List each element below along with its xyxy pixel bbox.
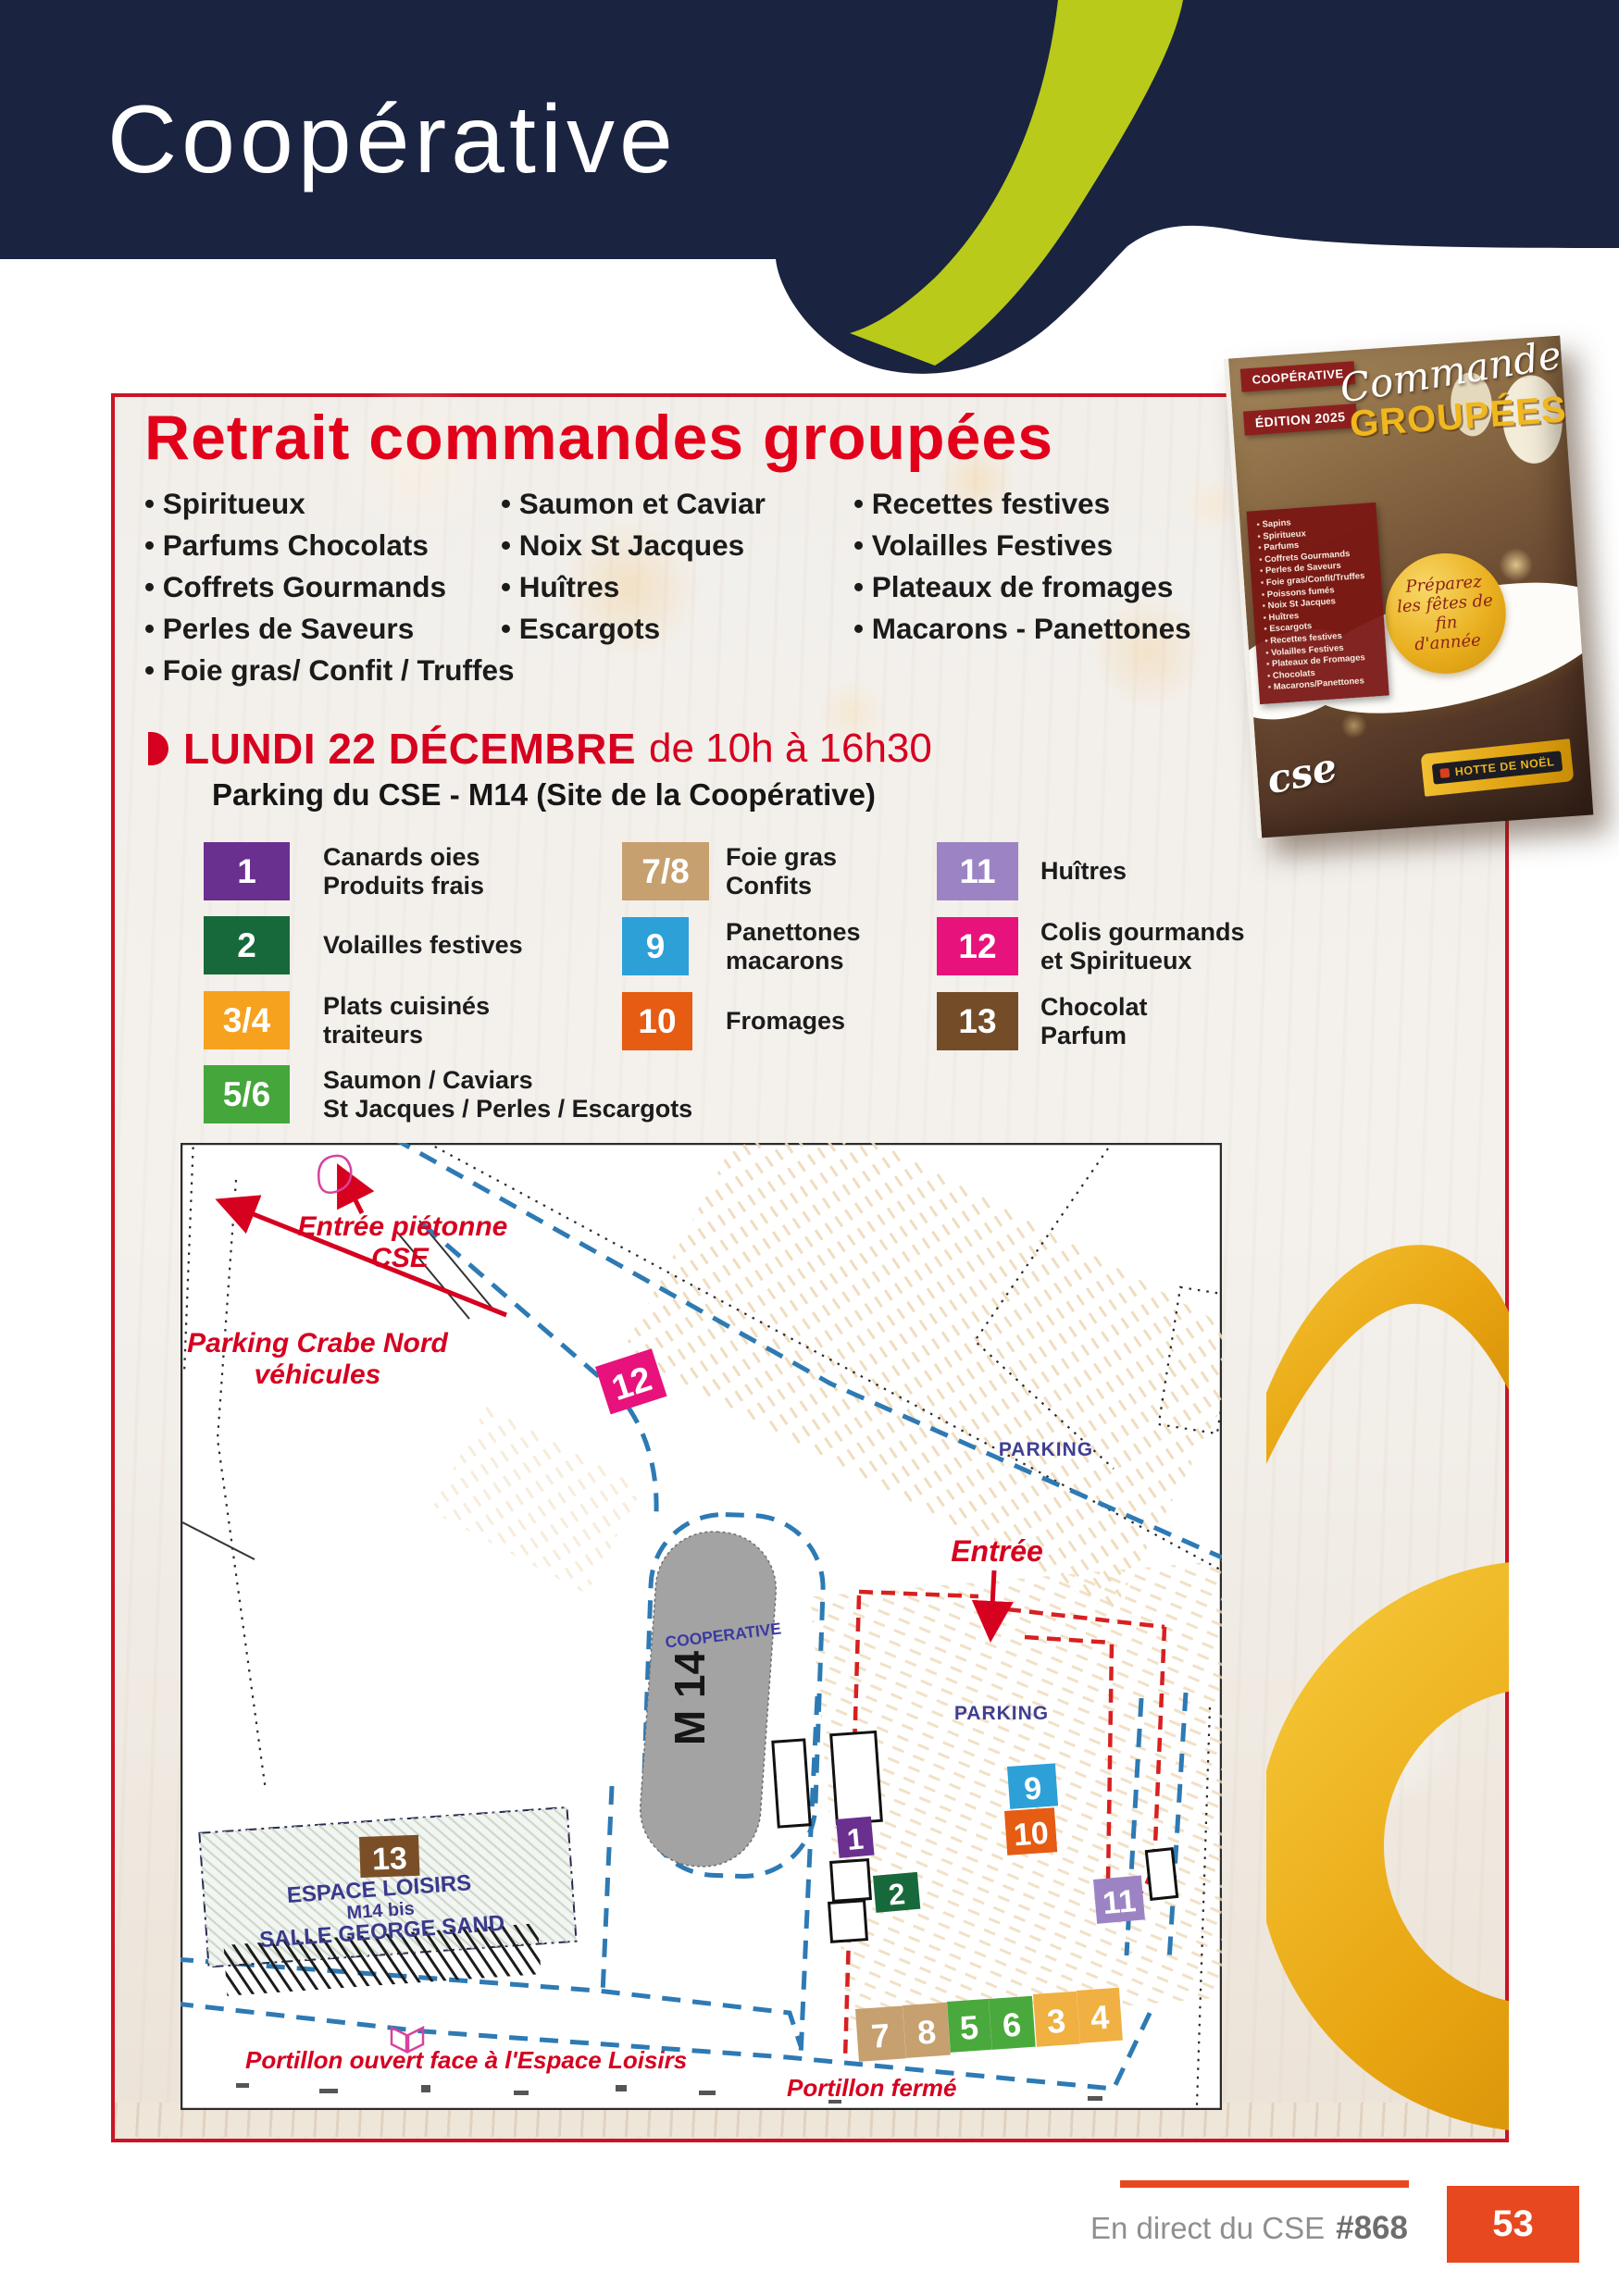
svg-text:2: 2 (887, 1877, 906, 1911)
event-time: de 10h à 16h30 (649, 726, 932, 772)
legend-number: 11 (959, 852, 995, 891)
legend-label: Saumon / CaviarsSt Jacques / Perles / Es… (323, 1066, 692, 1123)
svg-text:4: 4 (1090, 1998, 1111, 2037)
list-item: Escargots (501, 608, 766, 650)
legend-item: 11 Huîtres (937, 842, 1127, 900)
gate-open-label: Portillon ouvert face à l'Espace Loisirs (245, 2046, 687, 2074)
legend-item: 10 Fromages (622, 992, 845, 1050)
footer-label: En direct du CSE (1090, 2211, 1325, 2245)
list-item: Spiritueux (144, 483, 515, 525)
list-item: Coffrets Gourmands (144, 566, 515, 608)
footer-rule (1120, 2180, 1409, 2188)
list-item: Huîtres (501, 566, 766, 608)
page-number-badge: 53 (1447, 2186, 1579, 2263)
legend-number: 5/6 (223, 1075, 270, 1114)
cse-logo: cse (1263, 744, 1340, 803)
legend-number-box: 13 (937, 992, 1018, 1050)
catalog-product-list: Sapins Spiritueux Parfums Coffrets Gourm… (1247, 503, 1389, 704)
catalog-cover: COOPÉRATIVE ÉDITION 2025 Commandes GROUP… (1224, 336, 1593, 838)
page-title: Coopérative (107, 85, 678, 195)
product-column-2: Saumon et Caviar Noix St Jacques Huîtres… (501, 483, 766, 650)
svg-text:8: 8 (916, 2013, 938, 2052)
legend-label: Plats cuisinéstraiteurs (323, 992, 490, 1049)
svg-text:5: 5 (959, 2008, 980, 2047)
map-marker: 13 (359, 1835, 419, 1878)
map-marker: 9 (1007, 1763, 1058, 1809)
map-marker: 5 (947, 1999, 992, 2053)
legend-number-box: 10 (622, 992, 692, 1050)
list-item: Parfums Chocolats (144, 525, 515, 566)
list-item: Recettes festives (853, 483, 1191, 525)
svg-text:13: 13 (371, 1841, 407, 1877)
list-item: Saumon et Caviar (501, 483, 766, 525)
legend-label: Panettonesmacarons (726, 918, 861, 975)
parking-crabe-label2: véhicules (255, 1359, 381, 1390)
legend-number-box: 7/8 (622, 842, 709, 900)
gate-closed-label: Portillon fermé (787, 2074, 956, 2102)
site-map: COOPERATIVE M 14 12 1 2 9 10 11 7 8 (181, 1143, 1222, 2110)
legend-number-box: 9 (622, 917, 689, 975)
map-marker: 7 (855, 2005, 906, 2061)
catalog-banner: HOTTE DE NOËL (1421, 738, 1575, 797)
legend-number-box: 3/4 (204, 991, 290, 1049)
map-marker: 4 (1077, 1988, 1123, 2043)
product-column-3: Recettes festives Volailles Festives Pla… (853, 483, 1191, 650)
svg-text:7: 7 (870, 2017, 891, 2055)
parking-crabe-label: Parking Crabe Nord (187, 1328, 448, 1359)
legend-label: Huîtres (1040, 857, 1127, 886)
legend-number: 3/4 (223, 1001, 270, 1040)
gold-wave (1266, 1245, 1509, 1464)
gold-ring (1320, 1624, 1509, 2068)
map-marker: 11 (1093, 1875, 1145, 1923)
list-item: Volailles Festives (853, 525, 1191, 566)
legend-item: 7/8 Foie grasConfits (622, 842, 837, 900)
list-item: Macarons - Panettones (853, 608, 1191, 650)
legend-number: 12 (958, 927, 996, 966)
pedestrian-entry-label2: CSE (371, 1243, 430, 1273)
event-heading: LUNDI 22 DÉCEMBRE de 10h à 16h30 (148, 724, 932, 774)
legend-number-box: 11 (937, 842, 1018, 900)
legend-number: 13 (958, 1002, 996, 1041)
svg-text:PARKING: PARKING (999, 1439, 1093, 1460)
building-m14-label: M 14 (666, 1650, 714, 1745)
event-location: Parking du CSE - M14 (Site de la Coopéra… (212, 777, 876, 813)
legend-item: 5/6 Saumon / CaviarsSt Jacques / Perles … (204, 1065, 692, 1123)
legend-label: Colis gourmandset Spiritueux (1040, 918, 1245, 975)
legend-label: ChocolatParfum (1040, 993, 1148, 1050)
legend-item: 12 Colis gourmandset Spiritueux (937, 917, 1245, 975)
map-marker: 10 (1004, 1807, 1057, 1855)
svg-text:10: 10 (1013, 1816, 1050, 1854)
banner-icon (1439, 768, 1450, 778)
map-marker: 3 (1033, 1992, 1080, 2047)
legend-number-box: 2 (204, 916, 290, 974)
legend-number: 1 (237, 852, 256, 891)
map-marker: 2 (873, 1872, 920, 1913)
svg-text:1: 1 (845, 1822, 865, 1856)
legend-number-box: 1 (204, 842, 290, 900)
entry-label: Entrée (951, 1534, 1043, 1568)
legend-number: 2 (237, 926, 256, 965)
legend-item: 9 Panettonesmacarons (622, 917, 861, 975)
svg-text:6: 6 (1002, 2005, 1023, 2044)
event-date: LUNDI 22 DÉCEMBRE (183, 724, 636, 774)
list-item: Plateaux de fromages (853, 566, 1191, 608)
legend-label: Volailles festives (323, 931, 523, 960)
list-item: Perles de Saveurs (144, 608, 515, 650)
map-marker: 8 (903, 2003, 951, 2058)
map-marker: 6 (989, 1996, 1036, 2050)
list-item: Foie gras/ Confit / Truffes (144, 650, 515, 691)
legend-number-box: 5/6 (204, 1065, 290, 1123)
legend-number-box: 12 (937, 917, 1018, 975)
legend-item: 3/4 Plats cuisinéstraiteurs (204, 991, 490, 1049)
footer: En direct du CSE#868 (1090, 2210, 1408, 2247)
legend-item: 2 Volailles festives (204, 916, 523, 974)
pedestrian-entry-label: Entrée piétonne (298, 1211, 508, 1242)
legend-number: 9 (646, 927, 666, 966)
catalog-tag-edition: ÉDITION 2025 (1243, 403, 1357, 435)
section-title: Retrait commandes groupées (144, 402, 1053, 474)
product-column-1: Spiritueux Parfums Chocolats Coffrets Go… (144, 483, 515, 691)
legend-item: 1 Canards oiesProduits frais (204, 842, 484, 900)
svg-text:11: 11 (1102, 1883, 1138, 1921)
legend-label: Foie grasConfits (726, 843, 837, 900)
footer-issue: #868 (1336, 2210, 1408, 2246)
legend-label: Fromages (726, 1007, 845, 1036)
legend-number: 7/8 (641, 852, 689, 891)
svg-text:PARKING: PARKING (954, 1703, 1049, 1724)
list-item: Noix St Jacques (501, 525, 766, 566)
svg-text:9: 9 (1023, 1771, 1043, 1807)
half-circle-bullet-icon (148, 732, 168, 765)
svg-text:3: 3 (1046, 2002, 1067, 2041)
header-banner (0, 0, 1619, 407)
map-marker: 1 (836, 1817, 875, 1858)
legend-item: 13 ChocolatParfum (937, 992, 1148, 1050)
legend-label: Canards oiesProduits frais (323, 843, 484, 900)
legend-number: 10 (638, 1002, 676, 1041)
banner-text: HOTTE DE NOËL (1454, 755, 1555, 778)
gold-decoration (1266, 1194, 1509, 2141)
